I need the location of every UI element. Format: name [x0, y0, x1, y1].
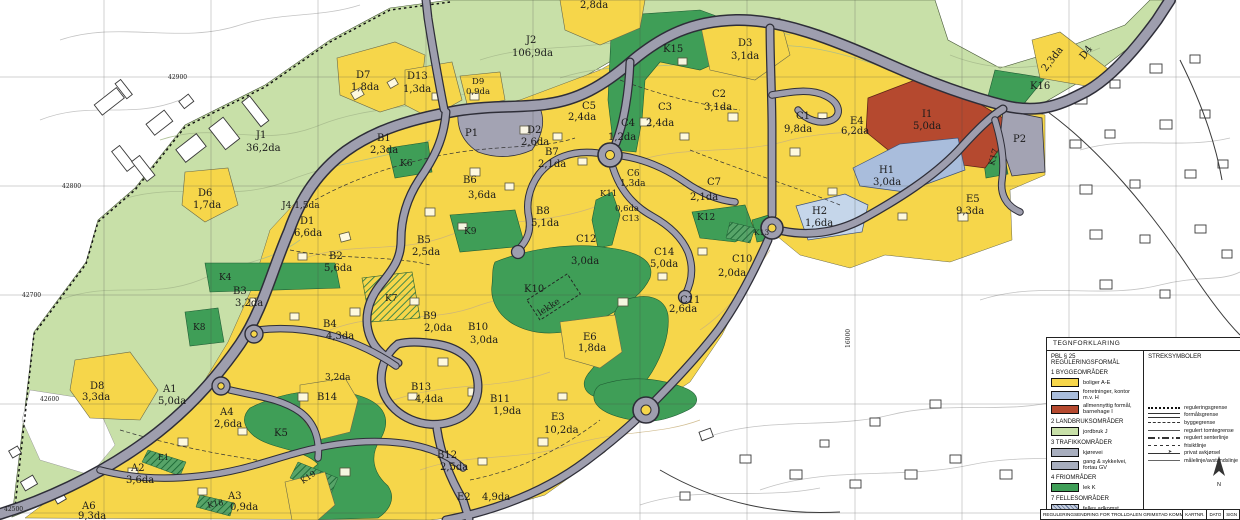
legend-item: kjørevei: [1051, 448, 1141, 457]
map-label: B12: [437, 450, 457, 461]
map-label: 3,1da: [731, 51, 759, 62]
map-label: 4,9da: [482, 492, 510, 503]
gray-swatch-icon: [1051, 448, 1079, 457]
map-label: 2,6da: [669, 304, 697, 315]
map-label: 3,6da: [126, 475, 154, 486]
map-label: E1: [158, 453, 169, 462]
map-label: J1: [255, 130, 266, 141]
map-label: 4,3da: [326, 331, 354, 342]
map-label: 6,6da: [294, 228, 322, 239]
map-label: 2,4da: [568, 112, 596, 123]
legend-section-header: 3 TRAFIKKOMRÅDER: [1051, 440, 1141, 446]
map-label: C5: [582, 101, 596, 112]
map-label: 0,9da: [230, 502, 258, 513]
legend-item-label: kjørevei: [1083, 450, 1103, 456]
map-label: B1: [377, 133, 391, 144]
map-label: 2,6da: [214, 419, 242, 430]
map-label: 2,0da: [424, 323, 452, 334]
map-label: 1,2da: [608, 132, 636, 143]
map-label: 1,8da: [578, 343, 606, 354]
map-label: H1: [879, 165, 894, 176]
map-label: 1,3da: [403, 84, 431, 95]
shortdash-line-icon: [1148, 445, 1180, 446]
map-label: D1: [300, 216, 314, 227]
map-label: 106,9da: [512, 48, 553, 59]
line-symbol-item: formålsgrense: [1148, 412, 1238, 420]
map-label: B9: [423, 311, 437, 322]
map-label: D9: [472, 77, 484, 87]
legend-item: jordbruk J: [1051, 427, 1141, 436]
line-symbol-label: frisiktlinje: [1184, 443, 1206, 449]
map-label: 3,3da: [82, 392, 110, 403]
legend-item-label: jordbruk J: [1083, 429, 1108, 435]
map-label: H2: [812, 206, 827, 217]
map-label: A2: [130, 463, 145, 474]
thin-line-icon: [1148, 460, 1180, 461]
legend-item-label: lek K: [1083, 485, 1095, 491]
line-symbol-label: byggegrense: [1184, 420, 1215, 426]
map-label: P2: [1013, 134, 1026, 145]
map-label: D6: [198, 188, 212, 199]
legend-section-header: 1 BYGGEOMRÅDER: [1051, 370, 1141, 376]
map-label: 5,0da: [650, 259, 678, 270]
map-label: B3: [233, 286, 247, 297]
map-label: 2,1da: [690, 192, 718, 203]
map-label: D13: [407, 71, 428, 82]
map-label: C3: [658, 102, 672, 113]
map-label: B11: [490, 394, 510, 405]
map-label: 1,9da: [493, 406, 521, 417]
map-label: 5,0da: [913, 121, 941, 132]
map-label: P1: [465, 128, 478, 139]
titleblock-field: SIGN: [1223, 510, 1239, 519]
legend-item: forretninger, kontor m.v. H: [1051, 389, 1141, 401]
legend-item: boliger A-E: [1051, 378, 1141, 387]
zoning-map-sheet: J136,2daJ2106,9daJ4 1,5daD61,7daD71,8daD…: [0, 0, 1240, 520]
legend-title: TEGNFORKLARING: [1047, 338, 1240, 351]
dashdot-line-icon: [1148, 437, 1180, 438]
map-label: I1: [922, 109, 932, 120]
line-symbol-item: regulert senterlinje: [1148, 434, 1238, 442]
map-label: C10: [732, 254, 752, 265]
map-label: D2: [527, 125, 541, 136]
legend-item: lek K: [1051, 483, 1141, 492]
map-label: E6: [583, 332, 597, 343]
dash-line-icon: [1148, 422, 1180, 423]
solid-line-icon: [1148, 430, 1180, 431]
map-label: 3,1da: [704, 102, 732, 113]
map-label: 42900: [168, 74, 187, 81]
line-symbol-label: regulert tomtegrense: [1184, 428, 1234, 434]
map-label: C12: [576, 234, 596, 245]
map-label: 36,2da: [246, 143, 281, 154]
map-label: 2,5da: [412, 247, 440, 258]
titleblock-field: DATO: [1206, 510, 1223, 519]
map-label: 2,8da: [580, 0, 608, 11]
map-label: 0,9da: [466, 87, 490, 97]
map-label: K4: [219, 273, 232, 283]
dotted-line-icon: [1148, 407, 1180, 409]
map-label: C1: [796, 111, 810, 122]
blue-swatch-icon: [1051, 391, 1079, 400]
map-label: 42700: [22, 292, 41, 299]
map-label: K16: [1030, 81, 1050, 92]
legend-item-label: boliger A-E: [1083, 380, 1110, 386]
line-symbol-item: reguleringsgrense: [1148, 404, 1238, 412]
map-label: B10: [468, 322, 488, 333]
map-label: 16000: [845, 329, 852, 348]
map-label: K12: [697, 213, 715, 223]
legend-section-header: 7 FELLESOMRÅDER: [1051, 496, 1141, 502]
map-label: 2,3da: [370, 145, 398, 156]
map-label: D3: [738, 38, 752, 49]
legend-left-heading: PBL § 25 REGULERINGSFORMÅL: [1051, 354, 1141, 366]
map-label: 42800: [62, 183, 81, 190]
map-label: 5,0da: [158, 396, 186, 407]
map-label: 3,0da: [470, 335, 498, 346]
map-label: K11: [600, 189, 617, 199]
line-symbol-label: regulert senterlinje: [1184, 435, 1228, 441]
map-label: 2,5da: [440, 462, 468, 473]
arrow-line-icon: [1148, 453, 1180, 454]
map-label: C7: [707, 177, 721, 188]
legend-item: gang & sykkelvei, fortau GV: [1051, 459, 1141, 471]
legend-item-label: gang & sykkelvei, fortau GV: [1083, 459, 1141, 471]
map-label: 5,1da: [531, 218, 559, 229]
map-label: B14: [317, 392, 337, 403]
legend-section-header: 2 LANDBRUKSOMRÅDER: [1051, 419, 1141, 425]
map-label: 3,2da: [325, 373, 351, 383]
map-label: B7: [545, 147, 559, 158]
double-line-icon: [1148, 413, 1180, 418]
title-block: REGULERINGSENDRING FOR TROLLDALEN GRIMST…: [1040, 509, 1240, 520]
map-label: K15: [663, 44, 683, 55]
map-label: A1: [162, 384, 177, 395]
map-label: D7: [356, 70, 370, 81]
line-symbol-item: frisiktlinje: [1148, 442, 1238, 450]
map-label: C6: [627, 169, 640, 179]
map-label: 2,1da: [538, 159, 566, 170]
map-label: 9,3da: [956, 206, 984, 217]
map-label: 5,6da: [324, 263, 352, 274]
map-label: K9: [464, 227, 477, 237]
map-label: C2: [712, 89, 726, 100]
map-label: 9,3da: [78, 511, 106, 520]
map-label: B5: [417, 235, 431, 246]
green-swatch-icon: [1051, 483, 1079, 492]
map-label: B4: [323, 319, 337, 330]
line-symbol-label: formålsgrense: [1184, 412, 1218, 418]
legend-item-label: allmennyttig formål, barnehage I: [1083, 403, 1141, 415]
map-label: C13: [622, 214, 639, 224]
legend-item: allmennyttig formål, barnehage I: [1051, 403, 1141, 415]
line-symbol-label: reguleringsgrense: [1184, 405, 1227, 411]
map-label: E3: [551, 412, 565, 423]
map-label: E5: [966, 194, 980, 205]
map-label: 3,0da: [873, 177, 901, 188]
line-symbol-item: byggegrense: [1148, 419, 1238, 427]
map-label: 42600: [40, 396, 59, 403]
map-label: K7: [385, 294, 398, 304]
lightgreen-swatch-icon: [1051, 427, 1079, 436]
map-label: K5: [274, 428, 288, 439]
north-arrow: N: [1212, 456, 1226, 488]
legend-section-header: 4 FRIOMRÅDER: [1051, 475, 1141, 481]
map-label: B13: [411, 382, 431, 393]
map-label: 1,6da: [805, 218, 833, 229]
map-label: A3: [227, 491, 242, 502]
map-label: 2,0da: [718, 268, 746, 279]
map-label: B2: [329, 251, 343, 262]
map-label: 9,8da: [784, 124, 812, 135]
map-label: K10: [524, 284, 544, 295]
map-label: 3,0da: [571, 256, 599, 267]
map-label: E2: [457, 492, 471, 503]
map-label: A4: [219, 407, 234, 418]
yellow-swatch-icon: [1051, 378, 1079, 387]
map-label: C14: [654, 247, 674, 258]
line-symbol-item: regulert tomtegrense: [1148, 427, 1238, 435]
map-label: B8: [536, 206, 550, 217]
legend-item-label: forretninger, kontor m.v. H: [1083, 389, 1141, 401]
map-label: 4,4da: [415, 394, 443, 405]
map-label: K8: [193, 323, 206, 333]
legend-right-column: STREKSYMBOLER reguleringsgrenseformålsgr…: [1144, 351, 1240, 510]
map-label: 1,8da: [351, 82, 379, 93]
red-swatch-icon: [1051, 405, 1079, 414]
map-label: 3,2da: [235, 298, 263, 309]
legend-right-heading: STREKSYMBOLER: [1148, 354, 1238, 360]
map-label: 10,2da: [544, 425, 579, 436]
map-label: 0,6da: [615, 204, 639, 214]
legend-left-column: PBL § 25 REGULERINGSFORMÅL 1 BYGGEOMRÅDE…: [1047, 351, 1144, 510]
map-label: D8: [90, 381, 104, 392]
map-label: 3,6da: [468, 190, 496, 201]
map-label: K6: [400, 159, 413, 169]
gray-swatch-icon: [1051, 461, 1079, 470]
map-label: C4: [621, 118, 635, 129]
map-label: B6: [463, 175, 477, 186]
map-label: J2: [525, 35, 536, 46]
map-label: 2,4da: [646, 118, 674, 129]
north-label: N: [1212, 482, 1226, 488]
map-label: J4 1,5da: [281, 201, 320, 211]
map-label: 42500: [4, 506, 23, 513]
map-label: K13: [754, 228, 769, 237]
titleblock-field: KARTNR.: [1182, 510, 1206, 519]
map-label: 1,3da: [620, 179, 646, 189]
map-label: 1,7da: [193, 200, 221, 211]
map-label: 6,2da: [841, 126, 869, 137]
plan-title: REGULERINGSENDRING FOR TROLLDALEN GRIMST…: [1041, 510, 1182, 519]
legend-box: TEGNFORKLARING PBL § 25 REGULERINGSFORMÅ…: [1046, 337, 1240, 511]
